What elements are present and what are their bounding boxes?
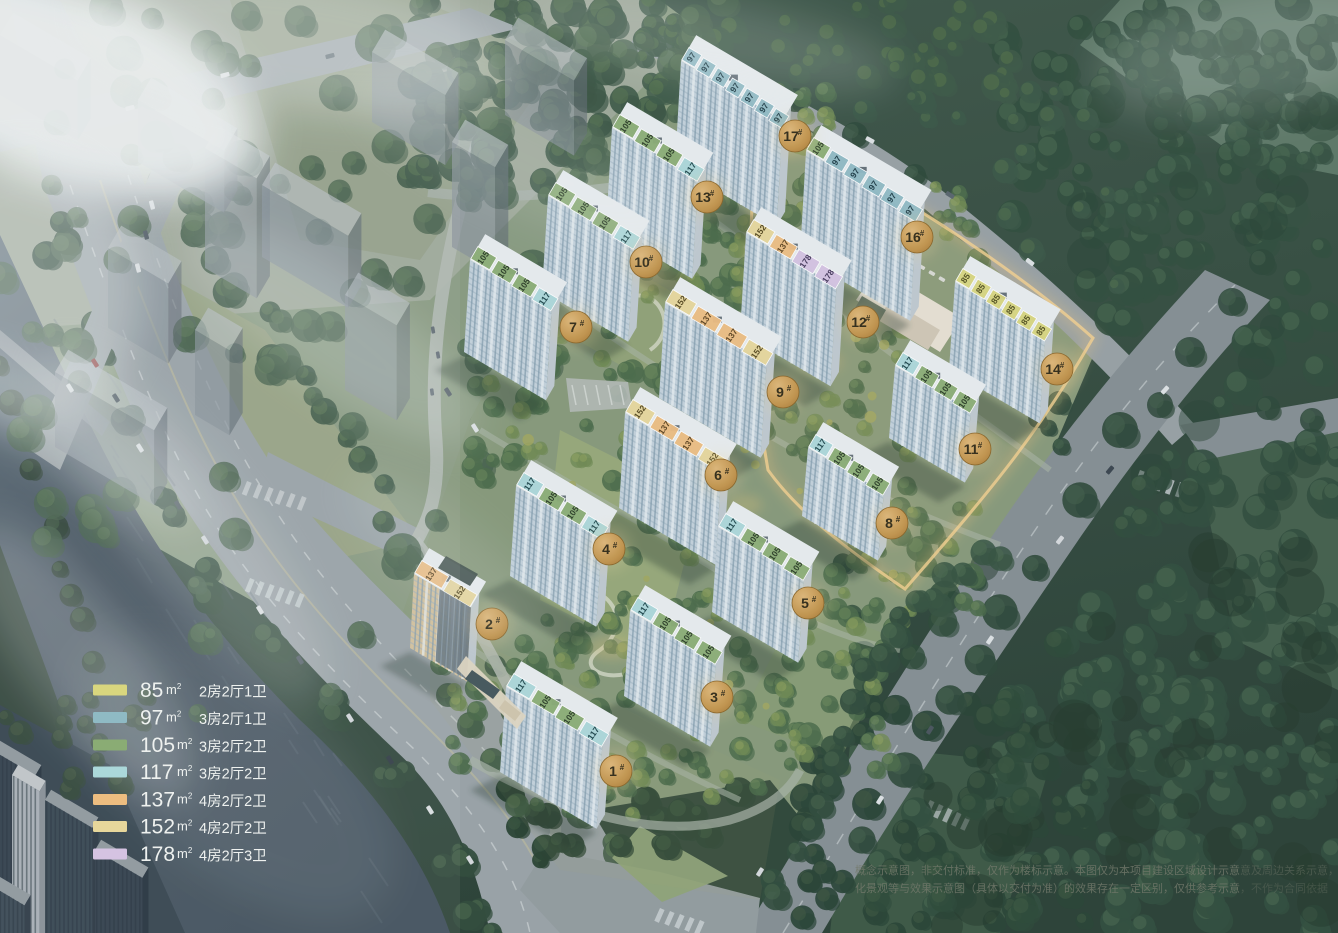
- svg-text:概念示意图，非交付标准，仅作为楼标示意。本图仅为本项目建设区: 概念示意图，非交付标准，仅作为楼标示意。本图仅为本项目建设区域设计示意意及周边关…: [855, 863, 1338, 877]
- svg-text:化景观等与效果示意图（具体以交付为准）的效果存在一定区别，仅: 化景观等与效果示意图（具体以交付为准）的效果存在一定区别，仅供参考示意，不作为合…: [855, 881, 1328, 895]
- svg-text:117: 117: [140, 761, 173, 784]
- svg-text:4房2厅3卫: 4房2厅3卫: [199, 848, 267, 865]
- svg-text:137: 137: [140, 789, 175, 812]
- svg-text:97: 97: [140, 707, 163, 730]
- svg-text:178: 178: [140, 843, 175, 866]
- svg-text:152: 152: [140, 816, 175, 839]
- svg-text:85: 85: [140, 679, 163, 702]
- svg-text:3房2厅2卫: 3房2厅2卫: [199, 766, 267, 783]
- svg-text:2房2厅1卫: 2房2厅1卫: [199, 684, 267, 701]
- svg-text:4房2厅2卫: 4房2厅2卫: [199, 820, 267, 837]
- svg-text:3房2厅1卫: 3房2厅1卫: [199, 711, 267, 728]
- svg-text:105: 105: [140, 734, 175, 757]
- svg-text:4房2厅2卫: 4房2厅2卫: [199, 793, 267, 810]
- svg-text:3房2厅2卫: 3房2厅2卫: [199, 739, 267, 756]
